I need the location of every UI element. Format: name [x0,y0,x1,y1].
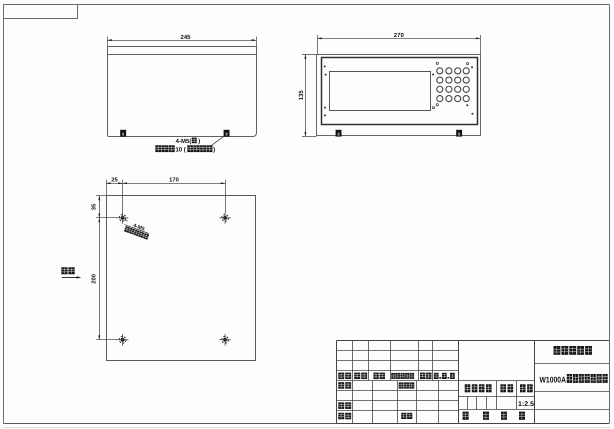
svg-text:1:2.5: 1:2.5 [518,401,534,408]
svg-text:10: 10 [175,146,182,153]
svg-text:270: 270 [394,32,405,39]
svg-text:200: 200 [91,274,98,284]
svg-text:135: 135 [298,90,305,101]
svg-text:4-M5(: 4-M5( [176,138,192,145]
svg-text:35: 35 [91,203,98,210]
svg-text:): ) [198,138,200,145]
svg-text:W1000A: W1000A [540,376,567,385]
svg-text:245: 245 [180,34,191,41]
svg-text:): ) [213,146,215,153]
svg-text:170: 170 [169,176,179,183]
svg-text:25: 25 [111,176,118,183]
